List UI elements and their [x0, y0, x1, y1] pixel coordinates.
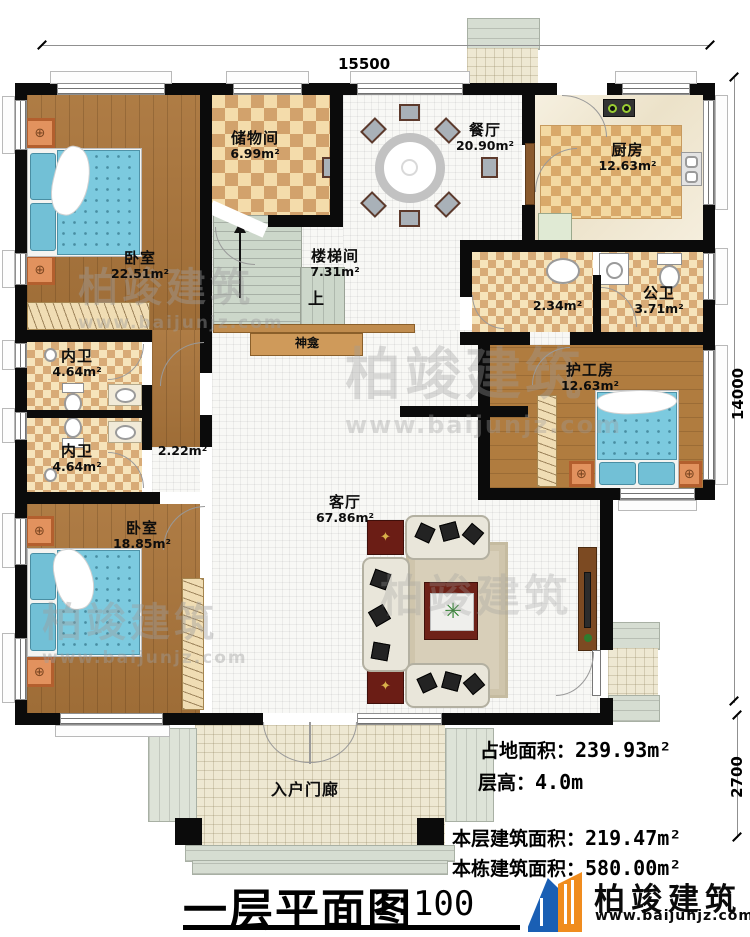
side-step-bottom: [608, 695, 660, 722]
sofa-pillow: [463, 673, 486, 696]
nightstand: ⊕: [677, 461, 702, 487]
room-label-bedroom-1: 卧室 22.51m²: [85, 250, 195, 281]
wall-segment: [703, 83, 715, 100]
basin: [115, 425, 136, 440]
room-label-bedroom-2: 卧室 18.85m²: [92, 520, 192, 551]
window: [15, 343, 27, 368]
window: [622, 83, 690, 95]
brand-logo-icon: [528, 872, 586, 932]
brand-site: www.baijunjz.com: [595, 908, 750, 924]
watermark-text: 柏竣建筑: [42, 590, 248, 648]
info-value: 219.47m²: [585, 826, 681, 850]
room-label-dining: 餐厅 20.90m²: [440, 122, 530, 153]
sofa-top: [405, 515, 490, 560]
room-label-stairwell: 楼梯间 7.31m²: [285, 248, 385, 279]
wall-segment: [460, 252, 472, 297]
wall-segment: [607, 83, 622, 95]
logo-slit: [571, 880, 574, 924]
burner: [608, 104, 617, 113]
dining-chair: [399, 210, 420, 227]
window-sill: [2, 250, 15, 288]
window-sill: [618, 500, 697, 511]
watermark-site: www.baijunjz.com: [345, 411, 622, 439]
room-label-public-bath: 公卫 3.71m²: [622, 285, 696, 316]
window: [703, 350, 715, 480]
wall-segment: [15, 150, 27, 253]
dining-chair: [399, 104, 420, 121]
porch-column: [175, 818, 202, 845]
toilet-tank: [657, 253, 682, 265]
window: [15, 638, 27, 700]
room-name: 储物间: [205, 130, 305, 147]
window: [15, 100, 27, 150]
wall-segment: [330, 95, 343, 227]
window-sill: [2, 96, 15, 154]
dimension-height: 14000: [729, 368, 747, 420]
back-landing: [467, 48, 538, 88]
info-value: 239.93m²: [575, 738, 671, 762]
wall-segment: [165, 83, 233, 95]
wall-segment: [15, 368, 27, 412]
room-label-living: 客厅 67.86m²: [300, 494, 390, 525]
wall-segment: [142, 385, 152, 410]
watermark-text: 柏竣建筑: [380, 560, 572, 624]
wall-segment: [15, 410, 152, 418]
sink-bowl: [685, 171, 698, 183]
kitchen-sink: [681, 152, 702, 186]
info-value: 4.0m: [535, 770, 583, 794]
fridge: [538, 213, 572, 242]
room-name: 内卫: [45, 443, 109, 460]
shrine-label: 神龛: [270, 337, 344, 350]
porch-left-band: [148, 728, 197, 822]
room-name: 卧室: [92, 520, 192, 537]
wall-segment: [522, 205, 535, 245]
room-label-storage: 储物间 6.99m²: [205, 130, 305, 161]
wall-segment: [15, 83, 27, 100]
window-sill: [2, 513, 15, 568]
room-area: 2.34m²: [515, 299, 600, 313]
room-name: 护工房: [540, 362, 640, 379]
scale-label: 1:100: [372, 884, 474, 924]
toilet-bath-2: [64, 417, 82, 438]
floor-plan-canvas: ⊕ ⊕ ⊕ ⊕ ⊕ ⊕: [0, 0, 750, 937]
wall-segment: [695, 488, 715, 500]
front-door-seam: [309, 722, 311, 764]
window: [703, 100, 715, 205]
tv: [584, 572, 591, 628]
room-area: 3.71m²: [622, 302, 696, 316]
side-step-top: [608, 622, 660, 650]
dimension-line-top: [42, 45, 710, 46]
room-label-bath-2: 内卫 4.64m²: [45, 443, 109, 474]
vanity-1: [108, 384, 142, 406]
nightstand: ⊕: [25, 118, 55, 148]
room-area: 4.64m²: [45, 365, 109, 379]
watermark-site: www.baijunjz.com: [42, 648, 248, 668]
wall-segment: [15, 565, 27, 638]
window: [703, 253, 715, 300]
sofa-bottom: [405, 663, 490, 708]
room-name: 内卫: [45, 348, 109, 365]
vanity-2: [108, 421, 142, 443]
toilet-tank: [62, 383, 84, 393]
window-sill: [2, 633, 15, 703]
room-area: 4.64m²: [45, 460, 109, 474]
window-sill: [715, 345, 728, 485]
watermark: 柏竣建筑 www.baijunjz.com: [42, 590, 248, 668]
burner: [622, 104, 631, 113]
nightstand: ⊕: [25, 255, 55, 285]
title-underline: [183, 925, 520, 930]
wall-segment: [163, 713, 263, 725]
sofa-pillow: [371, 642, 391, 662]
room-area: 18.85m²: [92, 537, 192, 551]
dimension-porch-depth: 2700: [728, 756, 746, 798]
room-area: 6.99m²: [205, 147, 305, 161]
dining-chair: [481, 157, 498, 178]
room-label-corridor: 2.22m²: [145, 444, 220, 458]
porch-column: [417, 818, 444, 845]
logo-slit: [540, 898, 543, 926]
room-label-caregiver: 护工房 12.63m²: [540, 362, 640, 393]
headboard-cushion: [599, 462, 636, 485]
nightstand: ⊕: [25, 516, 54, 546]
room-label-bath-1: 内卫 4.64m²: [45, 348, 109, 379]
headboard-cushion: [30, 203, 56, 251]
washer-drum: [606, 262, 623, 279]
side-landing: [608, 648, 658, 695]
room-name: 公卫: [622, 285, 696, 302]
nightstand: ⊕: [569, 461, 594, 487]
room-area: 22.51m²: [85, 267, 195, 281]
info-label: 占地面积：: [480, 740, 575, 762]
window: [57, 83, 165, 95]
room-name: 厨房: [580, 142, 675, 159]
tv-cabinet: [578, 547, 597, 651]
sofa-pillow: [441, 671, 462, 692]
logo-orange-shape: [558, 872, 582, 932]
window: [15, 518, 27, 565]
wall-segment: [600, 698, 613, 725]
window: [357, 713, 442, 725]
logo-blue-shape: [528, 878, 560, 932]
headboard-cushion: [638, 462, 675, 485]
wall-segment: [600, 500, 613, 650]
side-table: ✦: [367, 668, 404, 704]
window-sill: [715, 248, 728, 305]
dining-table: [375, 133, 445, 203]
room-area: 20.90m²: [440, 139, 530, 153]
window: [15, 253, 27, 285]
plant-small: [584, 634, 592, 642]
washing-machine: [599, 253, 629, 285]
sofa-pillow: [414, 522, 435, 543]
sofa-pillow: [416, 672, 437, 693]
wall-segment: [442, 713, 613, 725]
info-floor-height: 层高：4.0m: [478, 768, 583, 795]
bed-bedroom-1: [27, 148, 140, 255]
basin: [115, 388, 136, 403]
room-area: 67.86m²: [300, 511, 390, 525]
room-label-porch: 入户门廊: [245, 781, 365, 799]
lazy-susan: [401, 159, 418, 176]
wall-segment: [15, 700, 27, 725]
window: [233, 83, 302, 95]
room-label-kitchen: 厨房 12.63m²: [580, 142, 675, 173]
room-name: 客厅: [300, 494, 390, 511]
info-label: 本层建筑面积：: [452, 828, 585, 850]
sink-bowl: [685, 156, 698, 168]
room-area: 2.22m²: [145, 444, 220, 458]
room-name: 楼梯间: [285, 248, 385, 265]
window-sill: [715, 95, 728, 210]
sofa-pillow: [439, 521, 460, 542]
room-area: 12.63m²: [580, 159, 675, 173]
window-sill: [2, 408, 15, 443]
info-land-area: 占地面积：239.93m²: [480, 736, 671, 763]
gas-stove: [603, 99, 635, 117]
room-area: 7.31m²: [285, 265, 385, 279]
room-label-washroom: 2.34m²: [515, 299, 600, 313]
room-name: 餐厅: [440, 122, 530, 139]
watermark: 柏竣建筑: [380, 560, 572, 624]
stairs-up-label: 上: [303, 290, 329, 308]
wall-segment: [463, 83, 557, 95]
wall-segment: [15, 440, 27, 518]
window: [60, 713, 163, 725]
wall-segment: [460, 240, 715, 252]
window: [357, 83, 463, 95]
room-name: 卧室: [85, 250, 195, 267]
window-sill: [55, 725, 170, 737]
side-table: ✦: [367, 520, 404, 555]
wall-segment: [15, 492, 160, 504]
washroom-sink: [546, 258, 580, 284]
dimension-width: 15500: [338, 55, 390, 73]
window: [15, 412, 27, 440]
info-label: 层高：: [478, 772, 535, 794]
wall-segment: [478, 488, 620, 500]
info-floor-area: 本层建筑面积：219.47m²: [452, 824, 681, 851]
porch-step-2: [192, 860, 448, 875]
window-sill: [2, 340, 15, 370]
logo-slit: [564, 884, 567, 924]
watermark-site: www.baijunjz.com: [78, 313, 284, 333]
room-area: 12.63m²: [540, 379, 640, 393]
sofa-pillow: [462, 523, 485, 546]
wall-segment: [302, 83, 357, 95]
window: [620, 488, 695, 500]
room-name: 入户门廊: [245, 781, 365, 799]
